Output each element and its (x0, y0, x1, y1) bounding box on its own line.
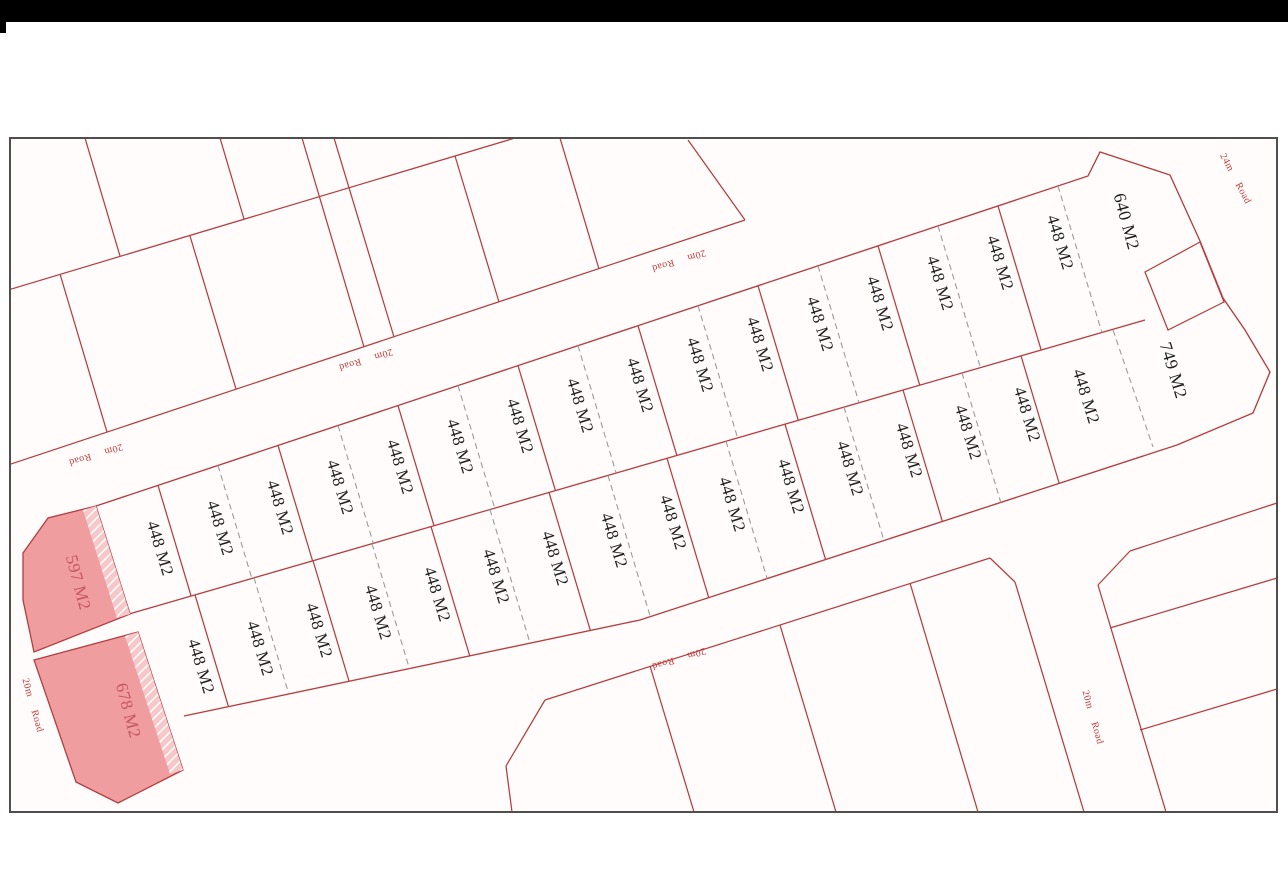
plan-canvas: 448 M2448 M2448 M2448 M2448 M2448 M2448 … (0, 0, 1288, 872)
subdivision-plan: 448 M2448 M2448 M2448 M2448 M2448 M2448 … (0, 0, 1288, 872)
